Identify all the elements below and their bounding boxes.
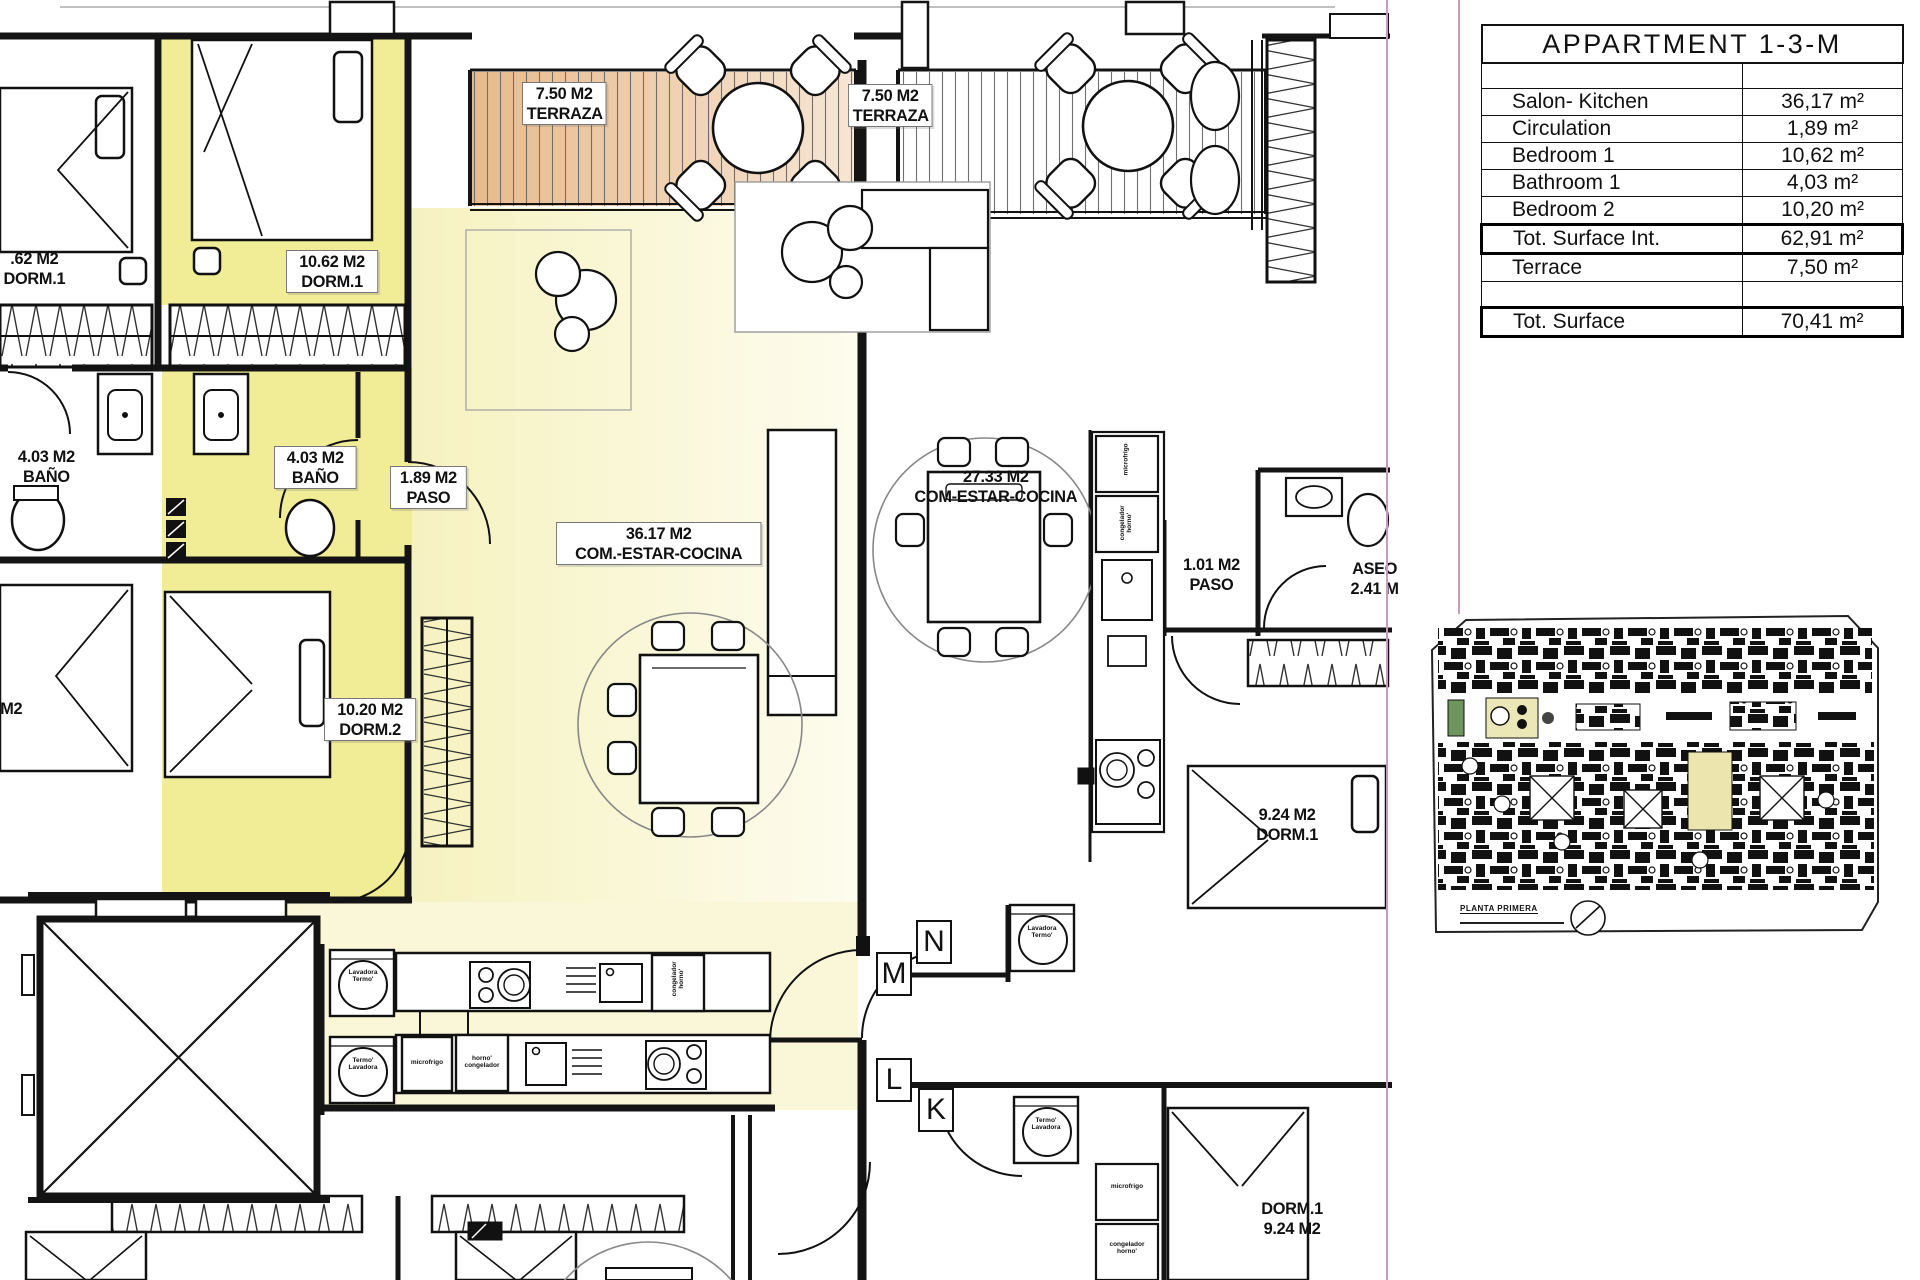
- table-row: Salon- Kitchen 36,17 m²: [1482, 89, 1903, 116]
- table-row: Terrace 7,50 m²: [1482, 254, 1903, 282]
- room-label-living-main: 36.17 M2 COM.-ESTAR-COCINA: [556, 522, 761, 565]
- table-row-total-interior: Tot. Surface Int. 62,91 m²: [1482, 225, 1903, 254]
- row-value: 10,20 m²: [1743, 197, 1903, 225]
- room-label-hall-main: 1.89 M2 PASO: [390, 466, 467, 509]
- row-label: Terrace: [1482, 254, 1743, 282]
- room-label-terrace-right: 7.50 M2 TERRAZA: [848, 84, 932, 127]
- appliance-label-fridge: congelador horno': [672, 956, 686, 1002]
- room-label-bath-main: 4.03 M2 BAÑO: [274, 446, 357, 489]
- row-value: 36,17 m²: [1743, 89, 1903, 116]
- room-label-bath-left: 4.03 M2 BAÑO: [8, 446, 85, 487]
- row-label: Bedroom 2: [1482, 197, 1743, 225]
- row-label: Tot. Surface: [1482, 308, 1743, 337]
- row-label: Tot. Surface Int.: [1482, 225, 1743, 254]
- row-value: 1,89 m²: [1743, 116, 1903, 143]
- appliance-label-microfridge: microfrigo: [404, 1060, 450, 1067]
- room-label-bedroom2-main: 10.20 M2 DORM.2: [324, 698, 416, 741]
- room-label-bedroom2-left: M2: [0, 698, 29, 720]
- table-row: Bedroom 1 10,62 m²: [1482, 143, 1903, 170]
- site-plan-caption-bar: [1460, 922, 1564, 924]
- room-label-living-right: 27.33 M2 COM-ESTAR-COCINA: [896, 466, 1096, 507]
- unit-letter-m: M: [876, 952, 912, 996]
- row-value: 62,91 m²: [1743, 225, 1903, 254]
- row-label: Circulation: [1482, 116, 1743, 143]
- site-plan-caption: PLANTA PRIMERA: [1460, 904, 1538, 914]
- table-row: Bathroom 1 4,03 m²: [1482, 170, 1903, 197]
- appliance-label-fridge-right: congelador horno': [1120, 500, 1134, 546]
- floorplan-page: 7.50 M2 TERRAZA 7.50 M2 TERRAZA .62 M2 D…: [0, 0, 1920, 1280]
- table-row: Circulation 1,89 m²: [1482, 116, 1903, 143]
- row-label: Salon- Kitchen: [1482, 89, 1743, 116]
- appliance-label-washer: Lavadora Termo': [338, 970, 388, 984]
- appliance-label-oven: horno' congelador: [458, 1056, 506, 1070]
- room-label-bedroom1-left: .62 M2 DORM.1: [0, 248, 73, 289]
- room-label-terrace-main: 7.50 M2 TERRAZA: [522, 82, 606, 125]
- row-label: Bedroom 1: [1482, 143, 1743, 170]
- row-label: Bathroom 1: [1482, 170, 1743, 197]
- appliance-label-washer-alt: Termo' Lavadora: [338, 1058, 388, 1072]
- unit-letter-l: L: [876, 1058, 912, 1102]
- elevator-core: [40, 899, 317, 1196]
- room-label-bedroom1-bottom: DORM.1 9.24 M2: [1246, 1198, 1338, 1239]
- section-boundary-line: [1386, 0, 1388, 1280]
- appliance-label-fridge-bottom: congelador horno': [1100, 1242, 1154, 1256]
- table-row: Bedroom 2 10,20 m²: [1482, 197, 1903, 225]
- row-value: 4,03 m²: [1743, 170, 1903, 197]
- room-label-bedroom1-right: 9.24 M2 DORM.1: [1242, 804, 1332, 845]
- appliance-label-microfridge-right: microfrigo: [1124, 436, 1131, 482]
- room-label-aseo: ASEO 2.41 M: [1342, 558, 1407, 599]
- room-label-hall-right: 1.01 M2 PASO: [1174, 554, 1249, 595]
- row-value: 7,50 m²: [1743, 254, 1903, 282]
- unit-letter-k: K: [918, 1088, 954, 1132]
- site-plan-thumbnail: [1432, 616, 1878, 935]
- apartment-title: APPARTMENT 1-3-M: [1482, 25, 1903, 63]
- room-label-bedroom1-main: 10.62 M2 DORM.1: [286, 250, 378, 293]
- row-value: 70,41 m²: [1743, 308, 1903, 337]
- table-row-total: Tot. Surface 70,41 m²: [1482, 308, 1903, 337]
- appliance-label-washer-right-bottom: Termo' Lavadora: [1020, 1118, 1072, 1132]
- table-title-row: APPARTMENT 1-3-M: [1482, 25, 1903, 63]
- appliance-label-microfridge-bottom: microfrigo: [1100, 1184, 1154, 1191]
- unit-letter-n: N: [916, 920, 952, 964]
- appliance-label-washer-right: Lavadora Termo': [1016, 926, 1068, 940]
- area-summary-table: APPARTMENT 1-3-M Salon- Kitchen 36,17 m²…: [1480, 24, 1904, 338]
- row-value: 10,62 m²: [1743, 143, 1903, 170]
- section-boundary-line-2: [1458, 0, 1460, 614]
